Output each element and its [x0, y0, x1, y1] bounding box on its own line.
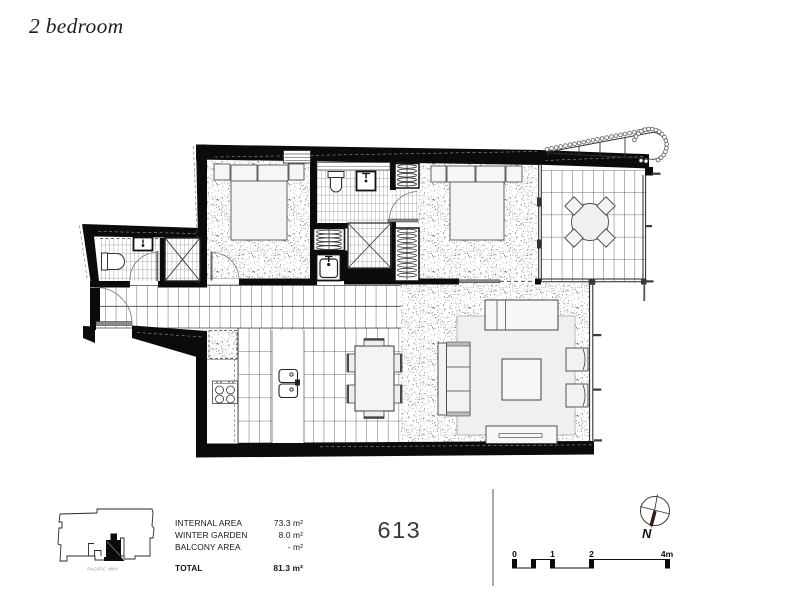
svg-text:WINTER GARDEN: WINTER GARDEN — [175, 530, 248, 540]
svg-text:- m²: - m² — [288, 542, 303, 552]
svg-text:4m: 4m — [661, 549, 674, 559]
svg-text:73.3 m²: 73.3 m² — [274, 518, 303, 528]
svg-text:BALCONY AREA: BALCONY AREA — [175, 542, 241, 552]
svg-text:1: 1 — [550, 549, 555, 559]
svg-text:2 bedroom: 2 bedroom — [29, 14, 123, 38]
svg-text:PACIFIC HWY: PACIFIC HWY — [87, 567, 118, 572]
svg-text:TOTAL: TOTAL — [175, 563, 203, 573]
svg-text:81.3 m²: 81.3 m² — [273, 563, 303, 573]
svg-text:8.0 m²: 8.0 m² — [279, 530, 303, 540]
svg-text:0: 0 — [512, 549, 517, 559]
svg-text:INTERNAL AREA: INTERNAL AREA — [175, 518, 242, 528]
svg-text:N: N — [642, 526, 652, 541]
svg-text:613: 613 — [378, 517, 422, 543]
svg-text:2: 2 — [589, 549, 594, 559]
